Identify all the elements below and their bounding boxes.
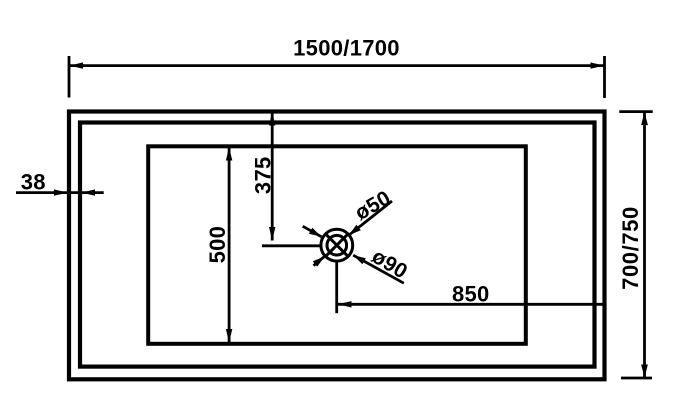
svg-text:ø90: ø90 — [368, 245, 412, 284]
svg-text:375: 375 — [251, 156, 276, 194]
svg-text:ø50: ø50 — [351, 186, 395, 224]
svg-text:500: 500 — [205, 226, 230, 264]
svg-text:700/750: 700/750 — [618, 206, 643, 290]
svg-text:38: 38 — [21, 170, 46, 195]
svg-text:850: 850 — [452, 282, 490, 307]
svg-text:1500/1700: 1500/1700 — [293, 36, 400, 61]
